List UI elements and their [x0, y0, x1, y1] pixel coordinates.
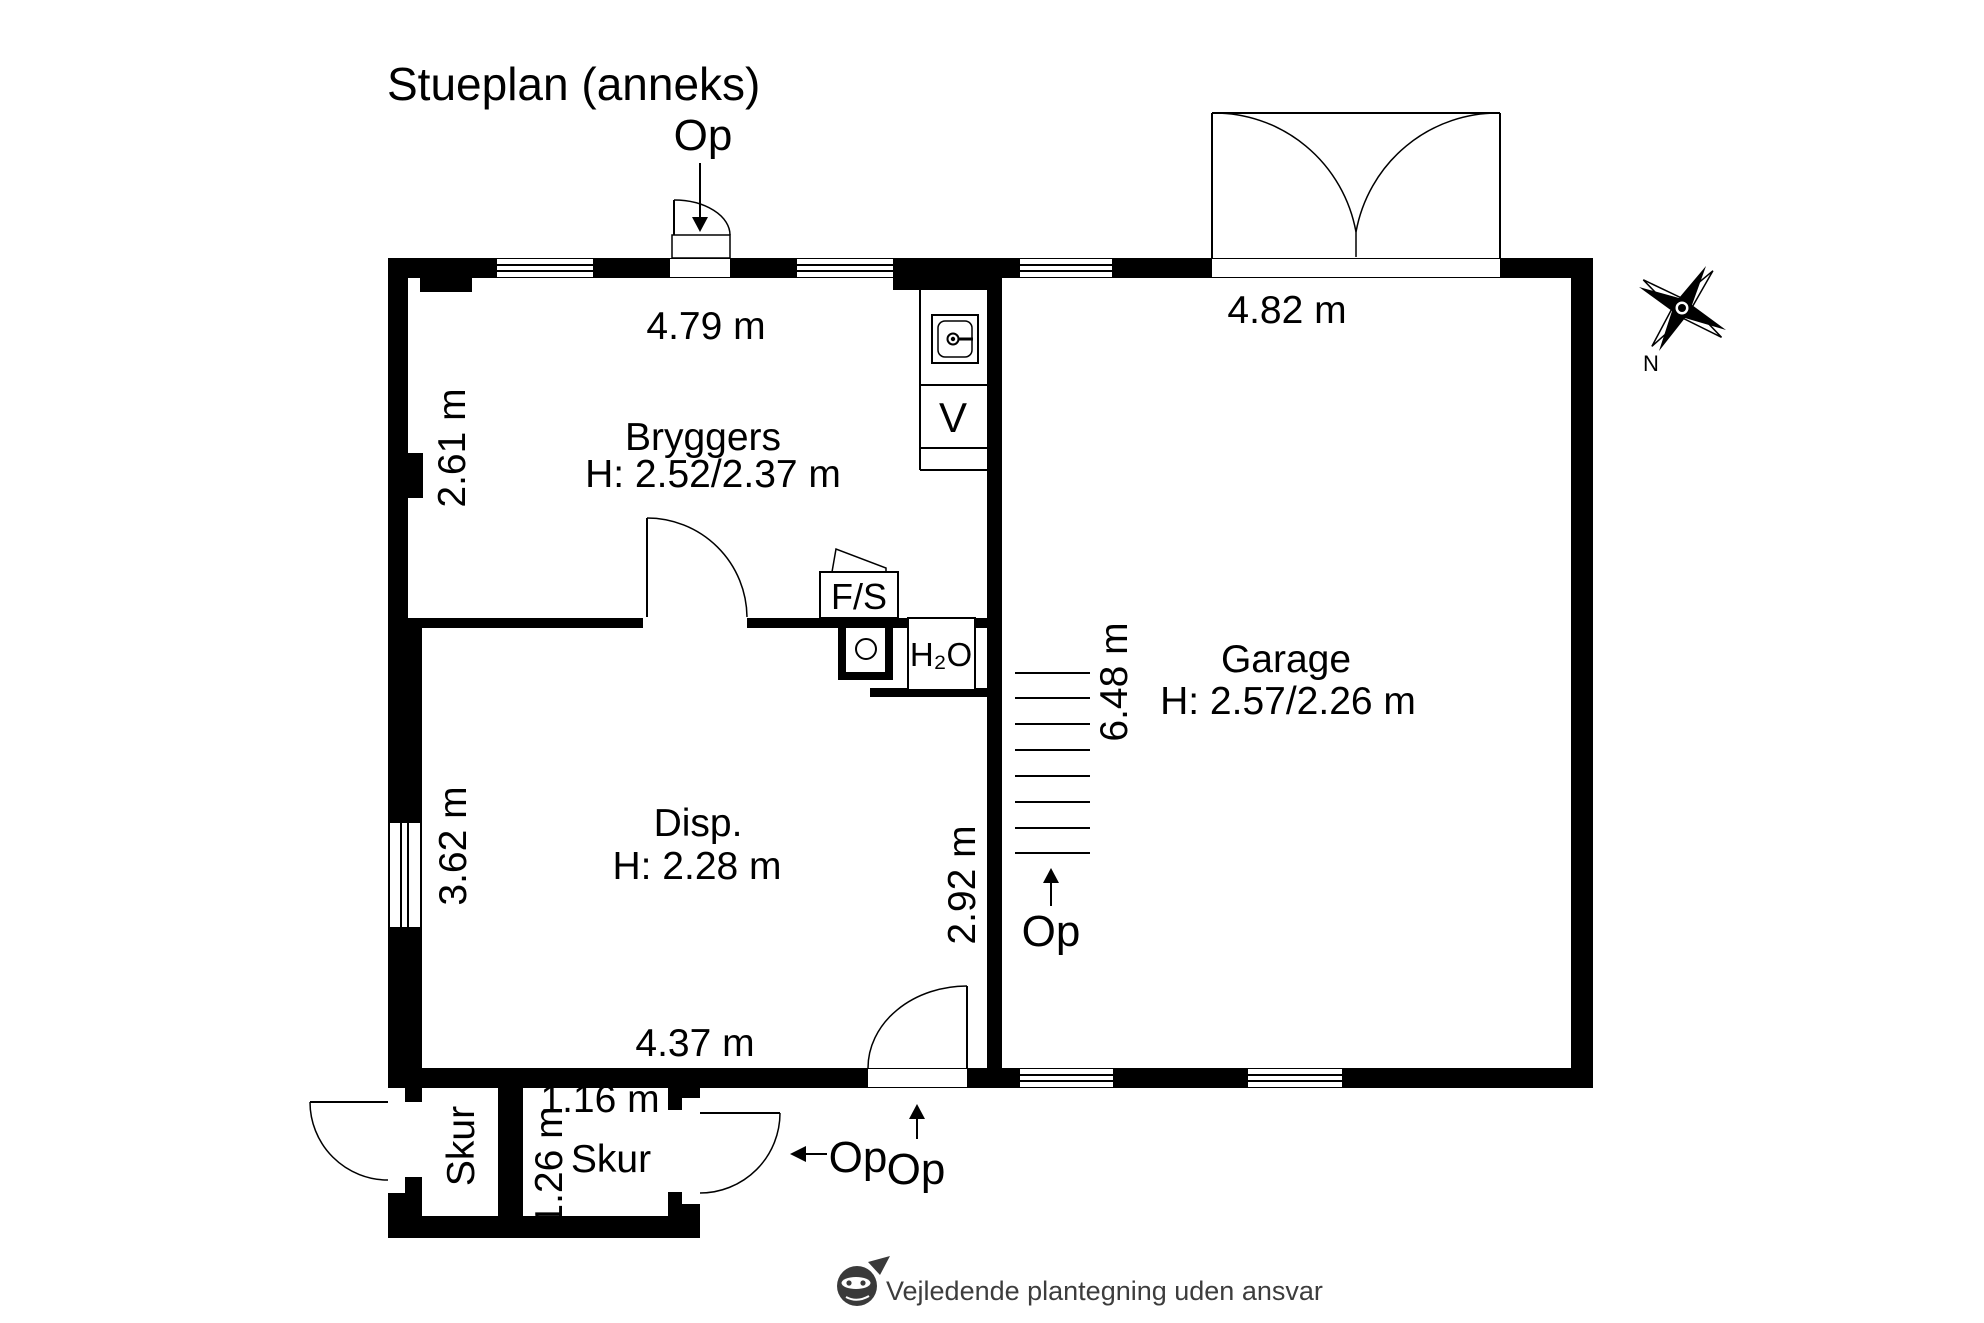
footer: Vejledende plantegning uden ansvar	[837, 1256, 1323, 1306]
bryggers-entry-label: Op	[674, 111, 733, 160]
disp-entry-label: Op	[887, 1145, 946, 1194]
garage-divider-wall	[987, 278, 1002, 1068]
freezer-cabinet-box: F/S	[820, 549, 898, 618]
water-box: H₂O	[908, 618, 975, 690]
top-wall-pier	[420, 278, 472, 292]
stairs-direction-label: Op	[1022, 907, 1081, 956]
skur-left-door	[310, 1102, 388, 1180]
disp-door-opening	[868, 1069, 967, 1087]
stairs-up-arrow-icon	[1043, 868, 1059, 906]
kitchen-counter: V	[920, 290, 987, 470]
page-title: Stueplan (anneks)	[387, 58, 760, 110]
bryggers-width-dim: 4.79 m	[646, 305, 765, 348]
garage-name: Garage	[1221, 638, 1351, 681]
skur-right-name: Skur	[571, 1138, 651, 1181]
garage-double-door	[1212, 113, 1500, 258]
bryggers-depth-dim: 2.61 m	[431, 388, 474, 507]
stairs: Op	[1015, 673, 1090, 956]
freezer-cabinet-label: F/S	[831, 576, 887, 617]
bryggers-door-opening	[670, 259, 730, 277]
floor-drain-icon	[856, 639, 876, 659]
hall-depth-dim: 2.92 m	[941, 825, 984, 944]
floorplan-drawing: V F/S H₂O Op Op	[0, 0, 1984, 1323]
sink-icon	[932, 315, 978, 363]
skur-exit-annotation: Op	[790, 1133, 887, 1182]
garage-window-top	[1020, 259, 1112, 277]
bryggers-window-left	[497, 259, 593, 277]
washing-machine-box: V	[939, 394, 967, 441]
left-wall-pier	[408, 453, 423, 498]
interior-door	[647, 518, 747, 617]
garage-ceiling: H: 2.57/2.26 m	[1160, 680, 1416, 723]
disp-depth-dim: 3.62 m	[432, 786, 475, 905]
down-arrow-icon	[692, 163, 708, 232]
cabinet-flap	[832, 549, 886, 572]
skur-depth-dim: 1.26 m	[528, 1106, 571, 1225]
garage-window-bottom-right	[1248, 1069, 1342, 1087]
disp-window-left	[390, 823, 420, 927]
disp-entry-annotation: Op	[887, 1104, 946, 1194]
disp-entry-door	[868, 986, 967, 1068]
disp-ceiling: H: 2.28 m	[612, 845, 781, 888]
compass-north-label: N	[1643, 351, 1659, 376]
garage-depth-dim: 6.48 m	[1093, 622, 1136, 741]
disp-name: Disp.	[654, 802, 743, 845]
garage-window-bottom-left	[1020, 1069, 1113, 1087]
ninja-logo-icon	[837, 1256, 890, 1306]
skur-left-name: Skur	[440, 1106, 483, 1186]
water-label: H₂O	[910, 636, 972, 673]
garage-width-dim: 4.82 m	[1227, 289, 1346, 332]
bryggers-window-right	[797, 259, 893, 277]
up-arrow-icon	[909, 1104, 925, 1139]
floorplan-page: V F/S H₂O Op Op	[0, 0, 1984, 1323]
garage-door-opening	[1212, 259, 1500, 277]
skur-right-door	[700, 1113, 780, 1193]
washing-machine-label: V	[939, 394, 967, 441]
skur-exit-label: Op	[829, 1133, 888, 1182]
left-arrow-icon	[790, 1146, 827, 1162]
disp-width-dim: 4.37 m	[635, 1022, 754, 1065]
bryggers-entry-annotation: Op	[674, 111, 733, 232]
drain-closet	[838, 618, 893, 680]
bryggers-ceiling: H: 2.52/2.37 m	[585, 453, 841, 496]
compass-rose: N	[1632, 259, 1732, 376]
disclaimer-text: Vejledende plantegning uden ansvar	[886, 1276, 1323, 1306]
